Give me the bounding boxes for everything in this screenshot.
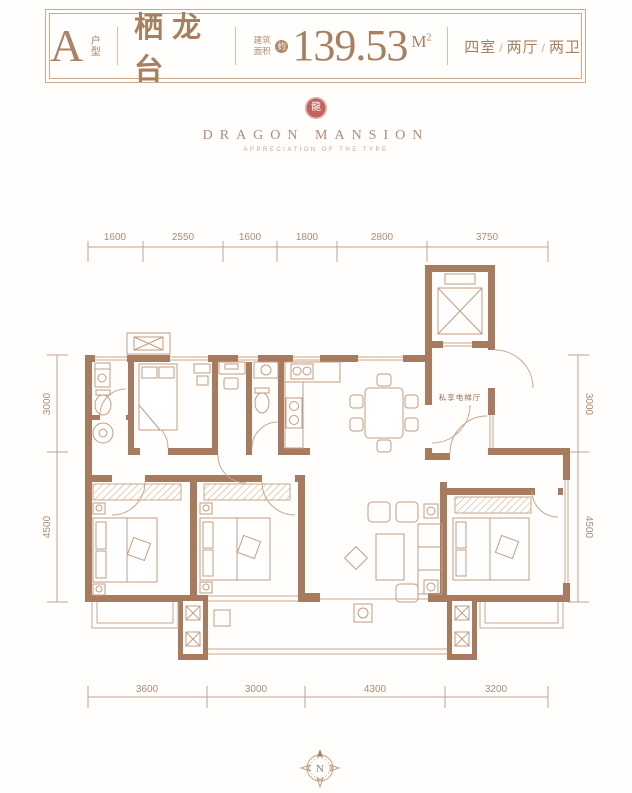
dimension-left: 3000 4500: [42, 355, 68, 602]
dim-label: 4500: [42, 515, 53, 538]
dimension-bottom: 3600 3000 4300 3200: [88, 684, 548, 708]
kitchen-furniture: [285, 362, 340, 448]
bathroom-2-fixtures: [254, 362, 278, 413]
dim-label: 1600: [239, 232, 262, 243]
living-room-furniture: [345, 502, 442, 602]
balcony-furniture: [214, 604, 372, 626]
master-bedroom-furniture: [453, 497, 531, 580]
dining-set: [350, 374, 418, 452]
dim-label: 3750: [476, 232, 499, 243]
study-furniture: [219, 362, 245, 389]
ac-closet: [127, 333, 170, 354]
floorplan-drawing: 1600 2550 1600 1800 2800 3750 3600 3000 …: [0, 0, 632, 793]
dim-label: 3000: [42, 392, 53, 415]
bedroom-a-furniture: [93, 484, 181, 595]
floorplan-page: A 户型 栖龙台 建筑面积 约 139.53 M2 四室/两厅/两卫 龍 DRA…: [0, 0, 632, 793]
dim-label: 2800: [371, 232, 394, 243]
dimension-top: 1600 2550 1600 1800 2800 3750: [88, 232, 548, 262]
walls: [85, 265, 570, 660]
vent-shafts: [183, 601, 472, 654]
dim-label: 1800: [296, 232, 319, 243]
dim-label: 3000: [245, 684, 268, 695]
dim-label: 4300: [364, 684, 387, 695]
elevator-symbol: [438, 274, 482, 334]
dim-label: 1600: [104, 232, 127, 243]
dim-label: 4500: [583, 516, 594, 539]
bedroom-top-furniture: [139, 364, 210, 430]
compass-north-letter: N: [316, 763, 324, 775]
bedroom-b-furniture: [200, 484, 290, 593]
compass: N: [301, 749, 339, 787]
dim-label: 3600: [136, 684, 159, 695]
room-label-elevator-hall: 私享电梯厅: [439, 392, 482, 402]
dim-label: 2550: [172, 232, 195, 243]
dim-label: 3000: [583, 393, 594, 416]
dim-label: 3200: [485, 684, 508, 695]
dimension-right: 3000 4500: [568, 355, 594, 602]
